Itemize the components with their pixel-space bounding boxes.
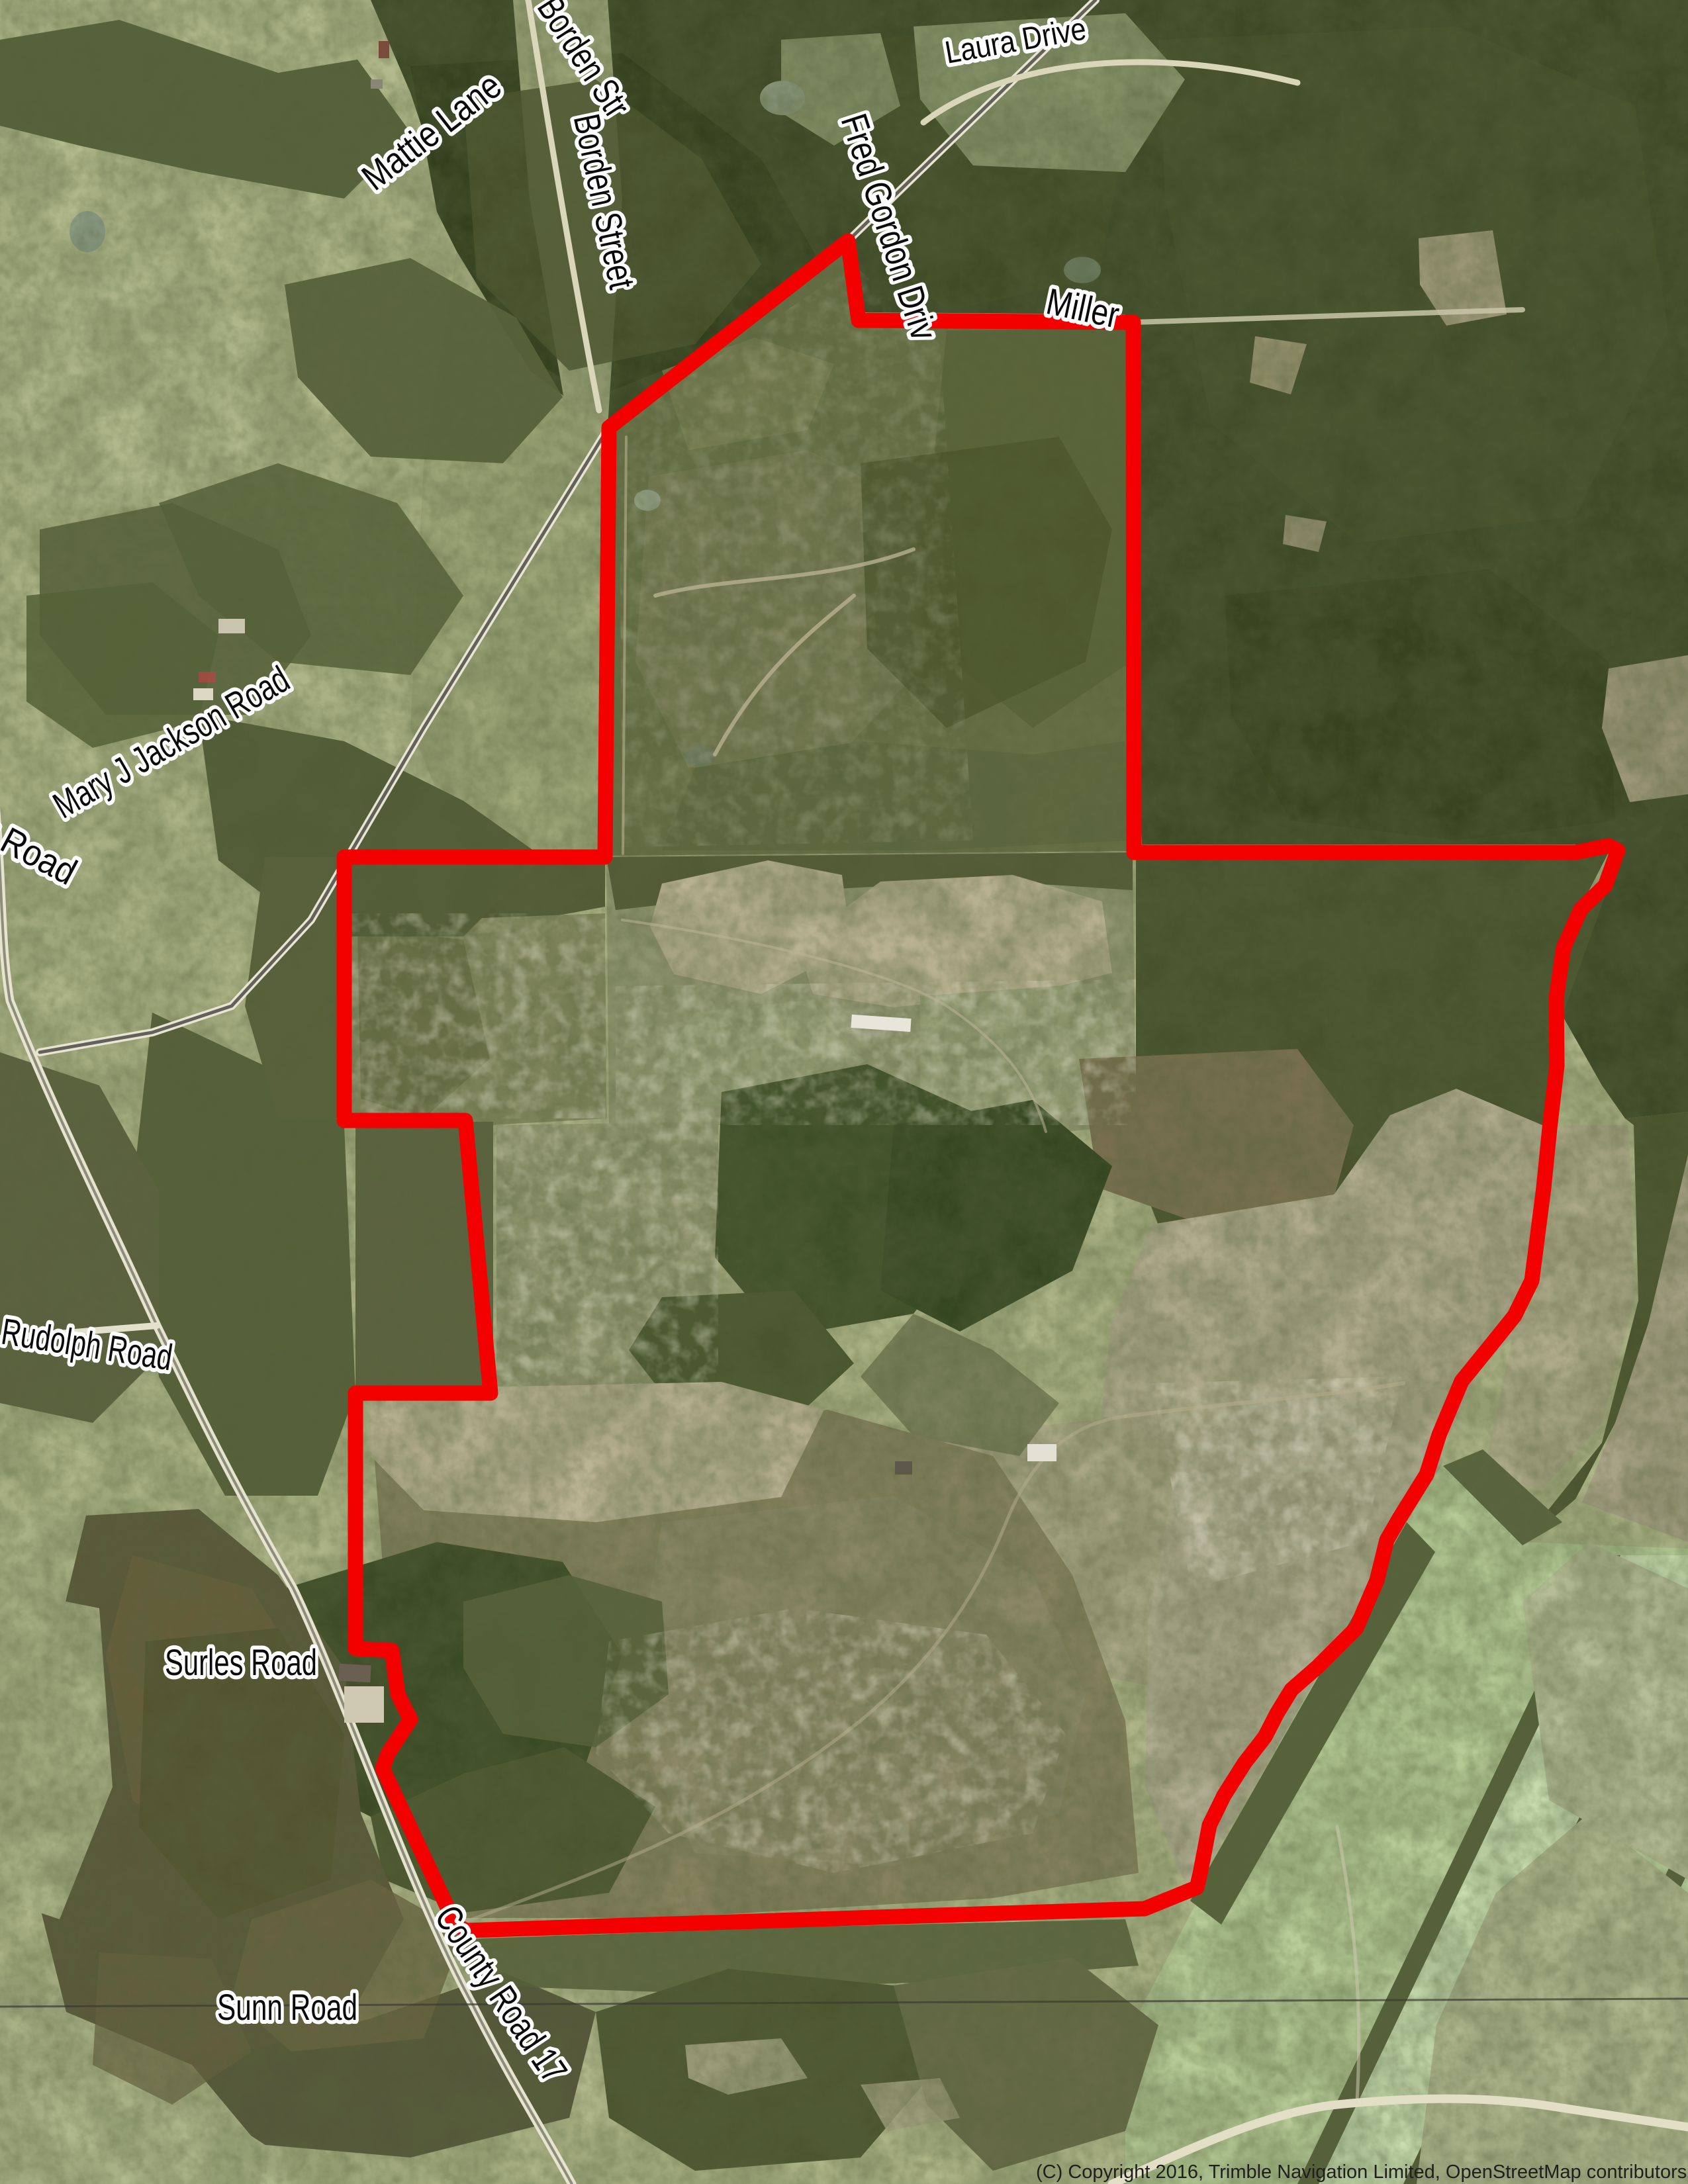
- svg-text:Sunn Road: Sunn Road: [217, 1986, 357, 2028]
- svg-text:Surles Road: Surles Road: [165, 1641, 317, 1683]
- svg-text:(C) Copyright 2016, Trimble Na: (C) Copyright 2016, Trimble Navigation L…: [1036, 2161, 1687, 2183]
